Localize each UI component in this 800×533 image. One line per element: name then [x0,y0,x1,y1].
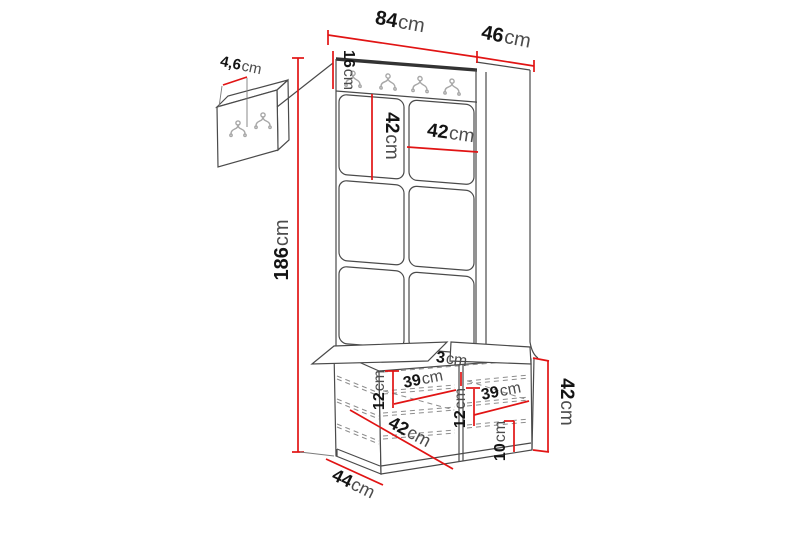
main-unit [336,59,477,358]
coat-hook-icon [444,78,460,95]
dimension-label-total-depth: 46cm [480,22,533,53]
upholstered-panel [409,186,474,271]
upholstered-panel [339,180,404,265]
dimension-total-depth: 46cm [477,22,534,72]
dimension-label-bench-height: 42cm [556,378,577,425]
upholstered-panel [409,272,474,354]
side-panel-top-edge [476,62,530,70]
wall-hook-panel [217,63,333,167]
dimension-label-plinth-height: 10cm [492,421,509,461]
bench-left-side [334,351,381,474]
side-panel-back-edge [530,70,538,358]
coat-hook-icon [380,73,396,90]
dimension-label-rail-height: 16cm [340,50,357,90]
dimension-bench-height: 42cm [533,358,577,452]
coat-rail-hooks [345,71,460,96]
seat-cushion-left [312,342,447,364]
dimension-label-total-width: 84cm [374,7,427,37]
wall-panel-side-edge [277,80,289,150]
dimension-label-shelf-clearance-mid: 12cm [452,388,469,428]
side-panel [476,62,538,358]
dimension-label-panel-height: 42cm [381,112,402,159]
furniture-dimension-diagram: 84cm 46cm 186cm 16cm 42cm 42cm 4,6cm 3cm [0,0,800,533]
dimension-label-wall-panel-thickness: 4,6cm [219,53,263,78]
coat-hook-icon [412,76,428,93]
upholstered-panel [339,266,404,348]
diagram-canvas: 84cm 46cm 186cm 16cm 42cm 42cm 4,6cm 3cm [0,0,800,533]
bench-right-edge [532,358,534,450]
dimension-label-seat-clearance-left: 12cm [371,370,388,410]
dimension-label-total-height: 186cm [271,219,293,280]
